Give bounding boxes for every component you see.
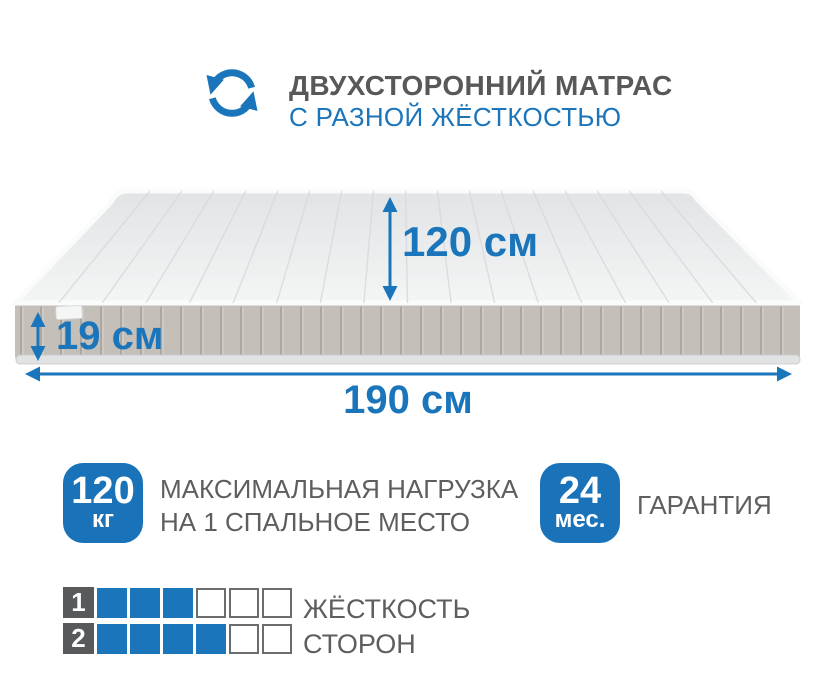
page-subtitle: С РАЗНОЙ ЖЁСТКОСТЬЮ	[289, 102, 621, 133]
warranty-label: ГАРАНТИЯ	[637, 490, 772, 521]
firmness-row-2-number: 2	[63, 623, 94, 654]
firmness-empty-square	[262, 624, 292, 654]
max-load-badge: 120 кг	[63, 463, 143, 543]
max-load-line2: НА 1 СПАЛЬНОЕ МЕСТО	[160, 506, 518, 539]
height-dimension-label: 19 см	[56, 314, 163, 359]
max-load-line1: МАКСИМАЛЬНАЯ НАГРУЗКА	[160, 473, 518, 506]
firmness-row-2-squares	[97, 624, 295, 654]
firmness-label: ЖЁСТКОСТЬ СТОРОН	[303, 592, 470, 662]
firmness-row-2: 2	[63, 623, 295, 654]
rotate-arrows-icon	[202, 62, 262, 124]
firmness-filled-square	[196, 624, 226, 654]
warranty-badge: 24 мес.	[540, 463, 620, 543]
firmness-row-1-squares	[97, 588, 295, 618]
firmness-filled-square	[97, 624, 127, 654]
firmness-row-1: 1	[63, 587, 295, 618]
firmness-filled-square	[163, 588, 193, 618]
firmness-empty-square	[262, 588, 292, 618]
firmness-filled-square	[163, 624, 193, 654]
firmness-filled-square	[97, 588, 127, 618]
firmness-empty-square	[196, 588, 226, 618]
max-load-value: 120	[71, 474, 134, 508]
firmness-label-line2: СТОРОН	[303, 627, 470, 662]
firmness-label-line1: ЖЁСТКОСТЬ	[303, 592, 470, 627]
firmness-row-1-number: 1	[63, 587, 94, 618]
max-load-unit: кг	[92, 508, 114, 532]
firmness-filled-square	[130, 624, 160, 654]
firmness-scale: 1 2	[63, 587, 295, 659]
page-title: ДВУХСТОРОННИЙ МАТРАС	[289, 70, 673, 102]
warranty-unit: мес.	[555, 508, 606, 532]
firmness-empty-square	[229, 624, 259, 654]
width-dimension-label: 120 см	[402, 218, 538, 266]
warranty-value: 24	[559, 474, 601, 508]
firmness-filled-square	[130, 588, 160, 618]
length-dimension-label: 190 см	[0, 378, 816, 423]
max-load-description: МАКСИМАЛЬНАЯ НАГРУЗКА НА 1 СПАЛЬНОЕ МЕСТ…	[160, 473, 518, 539]
firmness-empty-square	[229, 588, 259, 618]
